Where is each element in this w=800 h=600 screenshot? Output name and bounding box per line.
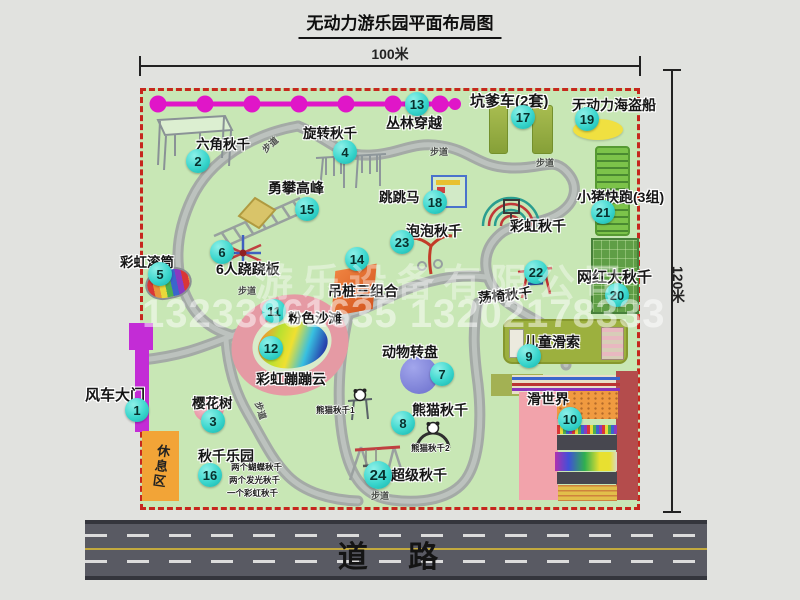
badge-6: 6 — [210, 240, 234, 264]
badge-20: 20 — [605, 283, 629, 307]
badge-2: 2 — [186, 149, 210, 173]
badge-19: 19 — [575, 107, 599, 131]
label-panda-swing-2: 熊猫秋千2 — [411, 442, 450, 454]
page-title: 无动力游乐园平面布局图 — [299, 9, 502, 39]
badge-15: 15 — [295, 197, 319, 221]
badge-14: 14 — [345, 247, 369, 271]
bubble-swing-icon — [412, 236, 452, 274]
climb-peak-icon — [214, 198, 308, 248]
badge-9: 9 — [517, 344, 541, 368]
badge-11: 11 — [262, 299, 286, 323]
label-swing-park-note-2: 两个发光秋千 — [229, 474, 280, 486]
label-hanging-piles: 吊桩三组合 — [328, 281, 398, 301]
label-panda-swing: 熊猫秋千 — [412, 400, 468, 420]
badge-17: 17 — [511, 105, 535, 129]
badge-13: 13 — [405, 92, 429, 116]
width-dimension-label: 100米 — [340, 44, 440, 64]
label-slide-world: 滑世界 — [527, 389, 569, 409]
label-pink-beach: 粉色沙滩 — [288, 307, 342, 327]
badge-22: 22 — [524, 260, 548, 284]
badge-8: 8 — [391, 411, 415, 435]
label-swing-park-note-3: 一个彩虹秋千 — [227, 487, 278, 499]
label-panda-swing-1: 熊猫秋千1 — [316, 404, 355, 416]
park-plan-screenshot: 无动力游乐园平面布局图 100米 120米 休息区 — [0, 0, 800, 600]
label-animal-carousel: 动物转盘 — [382, 342, 438, 362]
label-rainbow-swing: 彩虹秋千 — [510, 216, 566, 236]
label-bubble-swing: 泡泡秋千 — [406, 221, 462, 241]
badge-24: 24 — [364, 461, 392, 489]
badge-3: 3 — [201, 409, 225, 433]
badge-18: 18 — [423, 190, 447, 214]
trail-label: 步道 — [536, 156, 554, 169]
label-rotary-swing: 旋转秋千 — [303, 122, 357, 142]
label-climb-peak: 勇攀高峰 — [268, 178, 324, 198]
label-jump-horse: 跳跳马 — [379, 186, 420, 206]
badge-23: 23 — [390, 230, 414, 254]
label-bounce-cloud: 彩虹蹦蹦云 — [256, 369, 326, 389]
label-pig-run: 小猪快跑(3组) — [577, 187, 664, 207]
badge-1: 1 — [125, 398, 149, 422]
label-jungle-cross: 丛林穿越 — [386, 113, 442, 133]
trail-label: 步道 — [238, 284, 256, 297]
trail-label: 步道 — [371, 489, 389, 502]
badge-21: 21 — [591, 200, 615, 224]
badge-16: 16 — [198, 463, 222, 487]
badge-12: 12 — [259, 336, 283, 360]
badge-4: 4 — [333, 140, 357, 164]
height-dimension-label: 120米 — [668, 266, 688, 303]
badge-5: 5 — [148, 262, 172, 286]
badge-10: 10 — [558, 407, 582, 431]
label-super-swing: 超级秋千 — [391, 465, 447, 485]
label-pit-cart: 坑爹车(2套) — [470, 90, 548, 111]
badge-7: 7 — [430, 362, 454, 386]
label-swing-park-note-1: 两个蝴蝶秋千 — [231, 461, 282, 473]
trail-label: 步道 — [430, 145, 448, 158]
